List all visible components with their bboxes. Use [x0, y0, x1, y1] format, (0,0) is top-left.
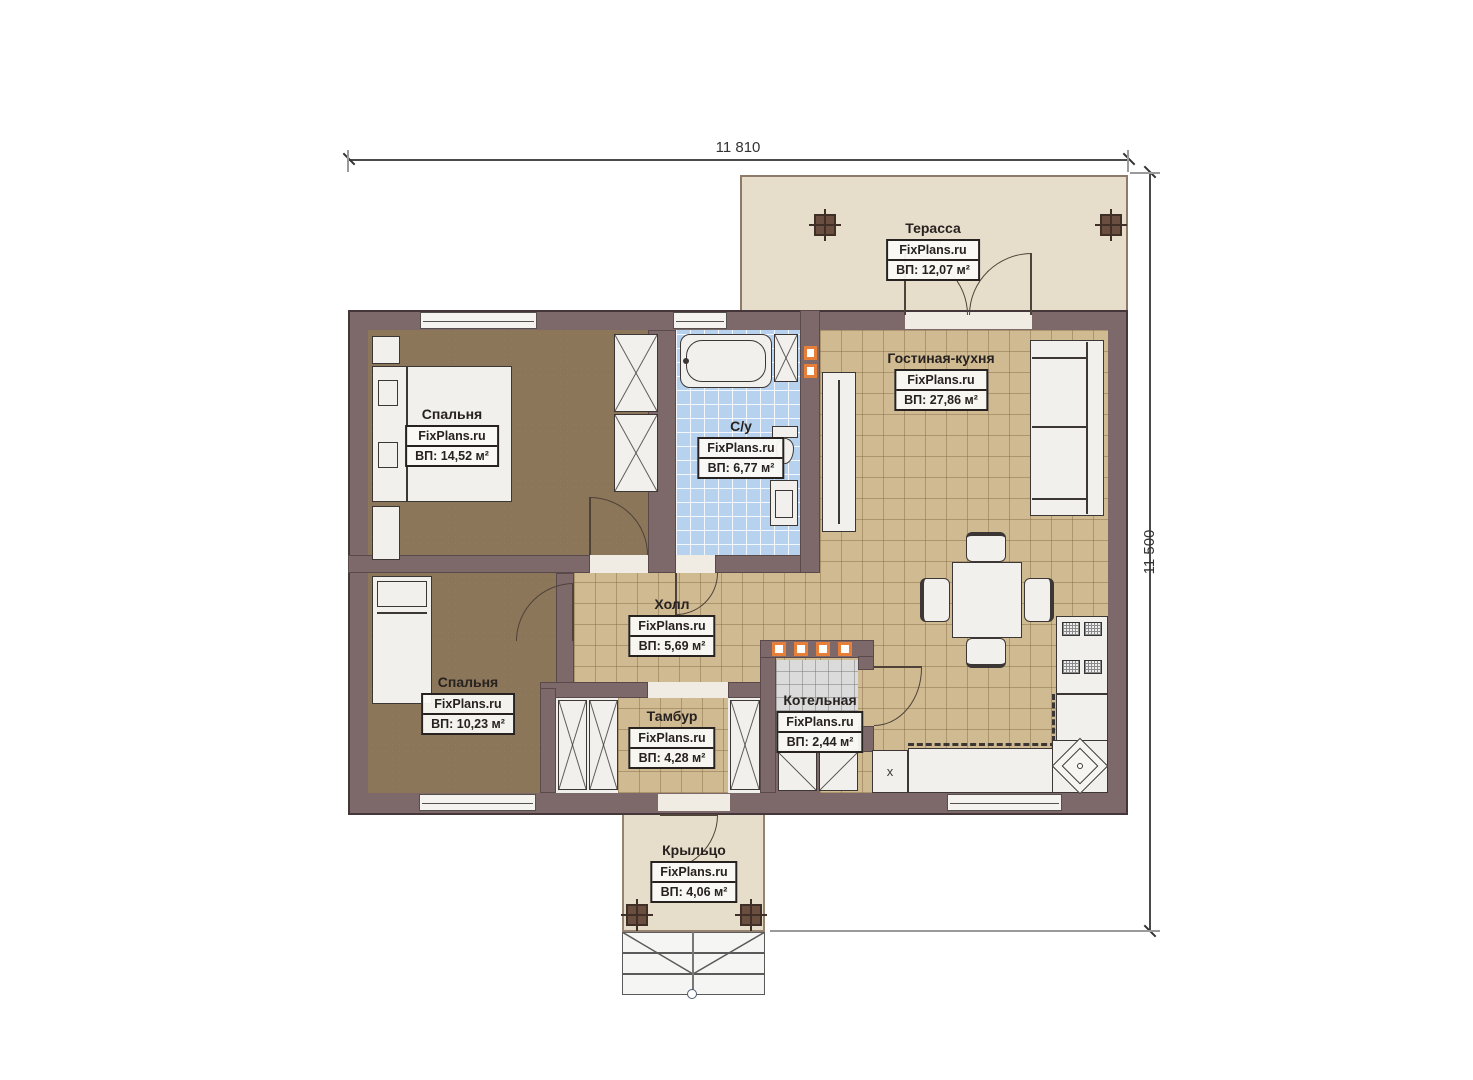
room-area: ВП: 2,44 м²: [778, 733, 861, 751]
room-area: ВП: 5,69 м²: [630, 637, 713, 655]
pillow: [377, 581, 427, 607]
stove-burner-icon: [1062, 660, 1080, 674]
entrance-door-leaf: [660, 814, 718, 816]
sink-drain-icon: [1077, 763, 1083, 769]
room-area: ВП: 10,23 м²: [423, 715, 513, 733]
porch-level-marker-icon: [687, 989, 697, 999]
room-name: Тамбур: [628, 708, 715, 724]
stove-burner-icon: [1084, 622, 1102, 636]
room-area: ВП: 14,52 м²: [407, 447, 497, 465]
wall-bedroom2-vestibule: [540, 688, 556, 793]
bathroom-door-opening: [676, 555, 715, 573]
flue-vent-icon: [794, 642, 808, 656]
extension-line: [770, 930, 1160, 932]
kitchen-counter-right: [1056, 694, 1108, 742]
chair: [1024, 578, 1054, 622]
stove-burner-icon: [1084, 660, 1102, 674]
terrace-post-icon: [1100, 214, 1122, 236]
stove-burner-icon: [1062, 622, 1080, 636]
room-label-porch: Крыльцо FixPlans.ru ВП: 4,06 м²: [650, 842, 737, 903]
room-brand: FixPlans.ru: [699, 439, 782, 459]
window-bedroom1: [420, 312, 537, 329]
floor-plan: 11 810 11 500: [0, 0, 1473, 1080]
room-label-vestibule: Тамбур FixPlans.ru ВП: 4,28 м²: [628, 708, 715, 769]
extension-line: [1130, 172, 1160, 174]
bedroom2-door-leaf: [572, 583, 574, 641]
window-bedroom2: [419, 794, 536, 811]
sofa-armrest-line: [1032, 357, 1086, 359]
extension-line: [347, 150, 349, 172]
boiler-door-leaf: [874, 666, 922, 668]
room-label-terrace: Терасса FixPlans.ru ВП: 12,07 м²: [886, 220, 980, 281]
room-brand: FixPlans.ru: [407, 427, 497, 447]
upper-cabinet-dashed-line: [1052, 694, 1055, 742]
window-bathroom: [673, 312, 727, 329]
room-brand: FixPlans.ru: [652, 863, 735, 883]
room-name: Крыльцо: [650, 842, 737, 858]
nightstand: [372, 336, 400, 364]
bathroom-shelf: [774, 334, 798, 382]
vestibule-door-opening: [648, 682, 728, 698]
extension-line: [1127, 150, 1129, 172]
room-brand: FixPlans.ru: [888, 241, 978, 261]
chair: [966, 532, 1006, 562]
room-brand: FixPlans.ru: [896, 371, 986, 391]
chair: [966, 638, 1006, 668]
flue-vent-icon: [772, 642, 786, 656]
room-label-bedroom-1: Спальня FixPlans.ru ВП: 14,52 м²: [405, 406, 499, 467]
sofa: [1030, 340, 1104, 516]
terrace-post-icon: [814, 214, 836, 236]
window-kitchen: [947, 794, 1062, 811]
room-label-boiler-room: Котельная FixPlans.ru ВП: 2,44 м²: [776, 692, 863, 753]
room-label-hall: Холл FixPlans.ru ВП: 5,69 м²: [628, 596, 715, 657]
room-name: Холл: [628, 596, 715, 612]
room-brand: FixPlans.ru: [630, 729, 713, 749]
entrance-door-opening: [658, 794, 730, 811]
flue-vent-icon: [816, 642, 830, 656]
wardrobe: [614, 334, 658, 412]
room-name: Спальня: [405, 406, 499, 422]
wardrobe: [730, 700, 760, 790]
dining-table: [952, 562, 1022, 638]
dimension-height-label: 11 500: [1141, 510, 1158, 594]
room-label-bathroom: С/у FixPlans.ru ВП: 6,77 м²: [697, 418, 784, 479]
porch-center-line: [692, 932, 694, 992]
porch-post-icon: [626, 904, 648, 926]
room-label-bedroom-2: Спальня FixPlans.ru ВП: 10,23 м²: [421, 674, 515, 735]
kitchen-counter-bottom: [908, 748, 1056, 793]
wardrobe: [558, 700, 587, 790]
sofa-armrest-line: [1032, 498, 1086, 500]
room-name: С/у: [697, 418, 784, 434]
room-brand: FixPlans.ru: [423, 695, 513, 715]
room-area: ВП: 6,77 м²: [699, 459, 782, 477]
porch-step-diagonals: [622, 932, 765, 974]
wardrobe: [614, 414, 658, 492]
porch-post-icon: [740, 904, 762, 926]
cabinet-handle-line: [838, 380, 840, 524]
terrace-door-leaf: [1030, 253, 1032, 315]
boiler-equipment: [819, 752, 858, 791]
room-brand: FixPlans.ru: [630, 617, 713, 637]
room-name: Котельная: [776, 692, 863, 708]
room-area: ВП: 27,86 м²: [896, 391, 986, 409]
room-name: Спальня: [421, 674, 515, 690]
bedroom1-door-leaf: [589, 497, 591, 555]
bed-blanket-line: [377, 612, 427, 614]
pillow: [378, 380, 398, 406]
flue-vent-icon: [804, 364, 817, 378]
room-area: ВП: 12,07 м²: [888, 261, 978, 279]
sink-basin: [775, 490, 793, 518]
pillow: [378, 442, 398, 468]
bedroom1-door-opening: [590, 555, 648, 573]
bathtub-faucet-icon: [683, 358, 689, 364]
flue-vent-icon: [838, 642, 852, 656]
sofa-back-line: [1086, 342, 1088, 514]
room-name: Терасса: [886, 220, 980, 236]
room-area: ВП: 4,28 м²: [630, 749, 713, 767]
wardrobe: [589, 700, 618, 790]
appliance-x-box: x: [872, 750, 908, 793]
room-label-living-kitchen: Гостиная-кухня FixPlans.ru ВП: 27,86 м²: [887, 350, 994, 411]
wall-hall-vestibule-west: [540, 682, 648, 698]
room-area: ВП: 4,06 м²: [652, 883, 735, 901]
dimension-width-label: 11 810: [688, 139, 788, 156]
room-brand: FixPlans.ru: [778, 713, 861, 733]
chair: [920, 578, 950, 622]
dimension-line-top: [348, 159, 1128, 161]
wall-boiler-west: [760, 640, 776, 793]
boiler-equipment: [778, 752, 817, 791]
sofa-cushion-line: [1032, 426, 1086, 428]
flue-vent-icon: [804, 346, 817, 360]
bathtub-basin: [686, 340, 766, 382]
wall-boiler-east-upper: [858, 656, 874, 670]
upper-cabinet-dashed-line: [908, 743, 1056, 746]
dresser: [372, 506, 400, 560]
room-name: Гостиная-кухня: [887, 350, 994, 366]
